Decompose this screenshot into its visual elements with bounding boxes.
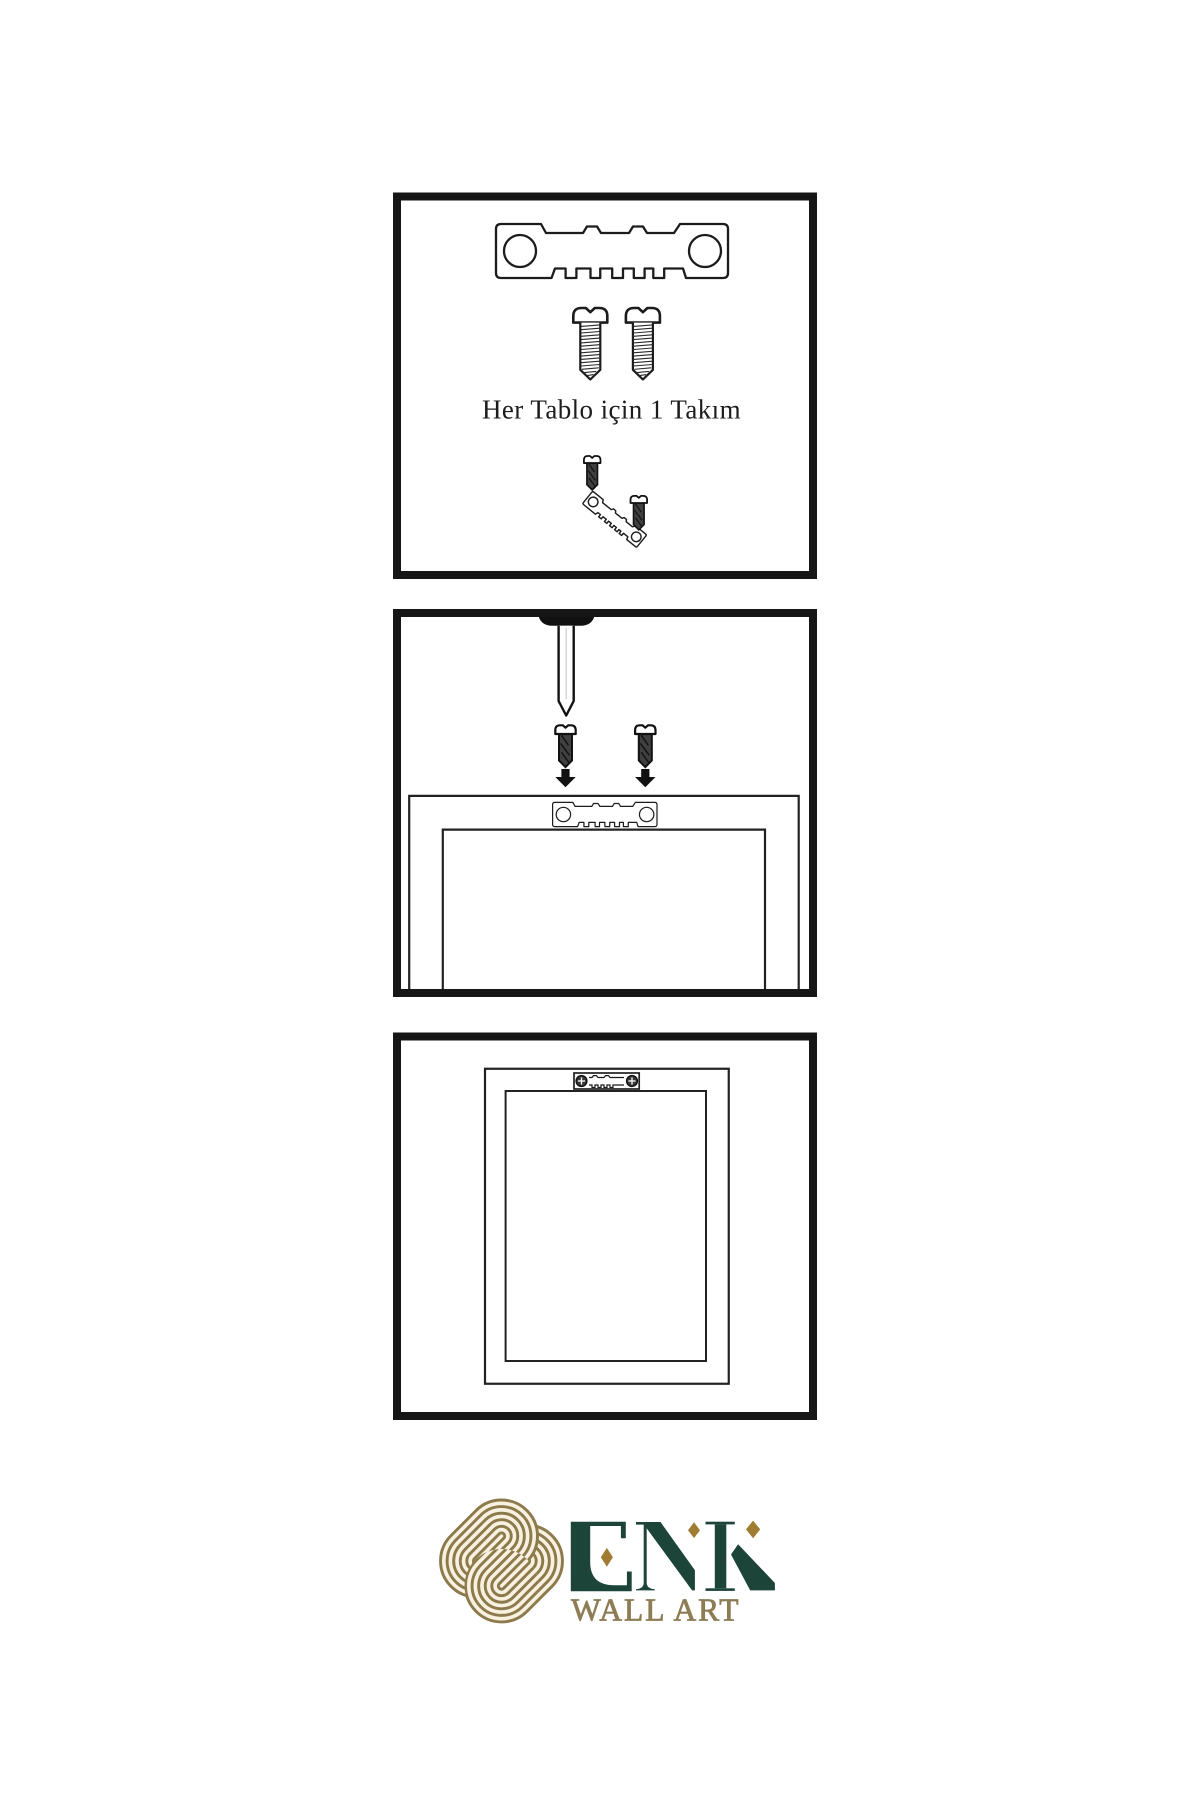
svg-text:Her Tablo için 1 Takım: Her Tablo için 1 Takım	[482, 395, 741, 425]
svg-text:WALL ART: WALL ART	[571, 1593, 741, 1628]
